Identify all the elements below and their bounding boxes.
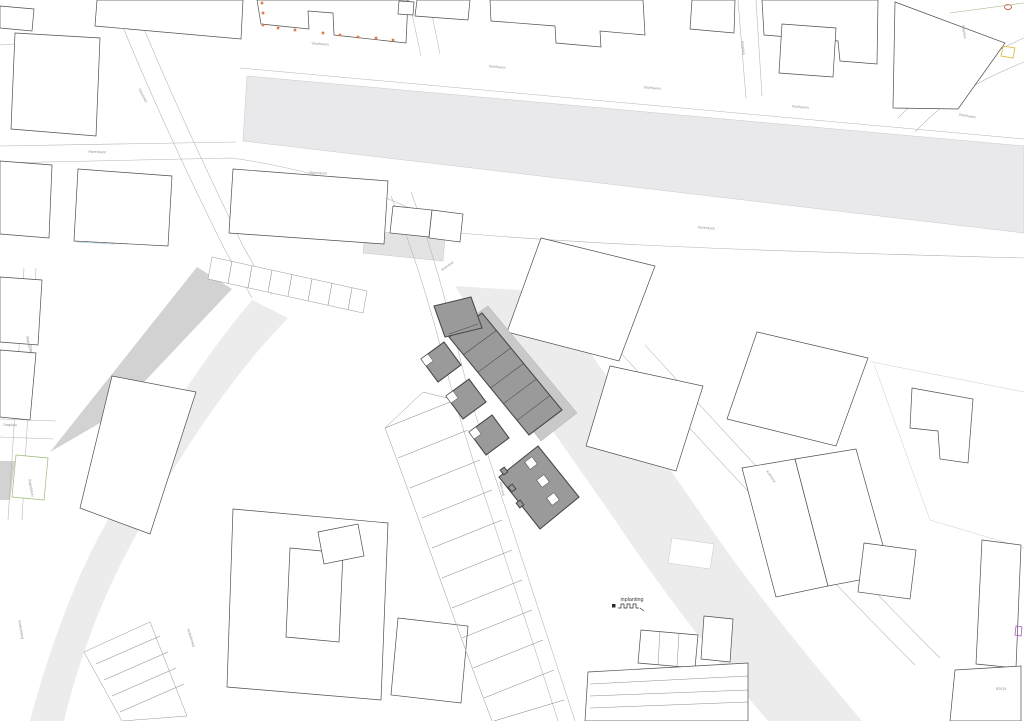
building: [95, 0, 243, 39]
street-label: Voorhaven: [791, 104, 808, 109]
facade-tick: [375, 37, 378, 40]
building: [701, 616, 733, 662]
building: [727, 332, 868, 446]
terrace-band-upper: [208, 257, 367, 313]
scale-bar: [612, 604, 644, 611]
building-wedge: [893, 2, 1005, 109]
facade-tick: [262, 12, 265, 15]
building: [950, 666, 1021, 721]
street-label: Krakeleweg: [186, 628, 196, 647]
street-label: Havenkant: [88, 150, 105, 155]
quay-line-south: [448, 232, 1024, 258]
green-boundary-line: [950, 3, 1024, 13]
building: [0, 277, 42, 345]
building: [0, 161, 52, 238]
street-label: Komvest: [441, 261, 455, 272]
street-label: Voorhaven: [958, 113, 976, 120]
building: [0, 350, 36, 420]
facade-tick: [261, 2, 264, 5]
facade-tick: [392, 39, 395, 42]
building: [779, 24, 836, 77]
building: [638, 630, 698, 668]
site-plan-canvas: inplanting VoorhavenVoorhavenVoorhavenVo…: [0, 0, 1024, 721]
building-notched: [910, 388, 973, 463]
street-label: Sasplein: [3, 423, 17, 427]
terrace-band-bottomleft: [84, 622, 187, 721]
facade-tick: [357, 36, 360, 39]
building: [74, 169, 172, 246]
building: [585, 663, 748, 721]
street-label: R2019: [996, 687, 1007, 691]
street-label: Voorhaven: [643, 85, 660, 90]
scale-bar-square: [612, 604, 616, 608]
street-label: Sasplein: [740, 41, 745, 55]
building: [391, 618, 468, 703]
site-plan: inplanting VoorhavenVoorhavenVoorhavenVo…: [0, 0, 1024, 721]
facade-tick: [262, 24, 265, 27]
building: [11, 33, 100, 136]
building: [490, 0, 645, 47]
scale-bar-zigzag: [618, 604, 639, 608]
street-label: Voorhaven: [488, 64, 505, 69]
building: [429, 210, 463, 242]
building: [229, 169, 388, 244]
facade-tick: [277, 27, 280, 30]
scale-bar-end-tick: [640, 608, 644, 611]
topleft-diagonal-street: [112, 0, 272, 298]
facade-tick: [294, 29, 297, 32]
building: [398, 1, 414, 15]
facade-tick: [322, 32, 325, 35]
building: [690, 0, 735, 33]
street-label: Havenkant: [697, 225, 714, 230]
street-label: Sasstraat: [138, 88, 149, 103]
building: [976, 540, 1021, 668]
street-label: Voorhaven: [311, 41, 328, 46]
facade-tick: [339, 34, 342, 37]
building-u-shape: [257, 0, 408, 43]
plan-title: inplanting: [620, 597, 643, 603]
street-label: Krakeleweg: [17, 620, 24, 639]
building: [415, 0, 470, 20]
building: [0, 6, 34, 31]
building: [390, 206, 432, 237]
building: [858, 543, 916, 599]
